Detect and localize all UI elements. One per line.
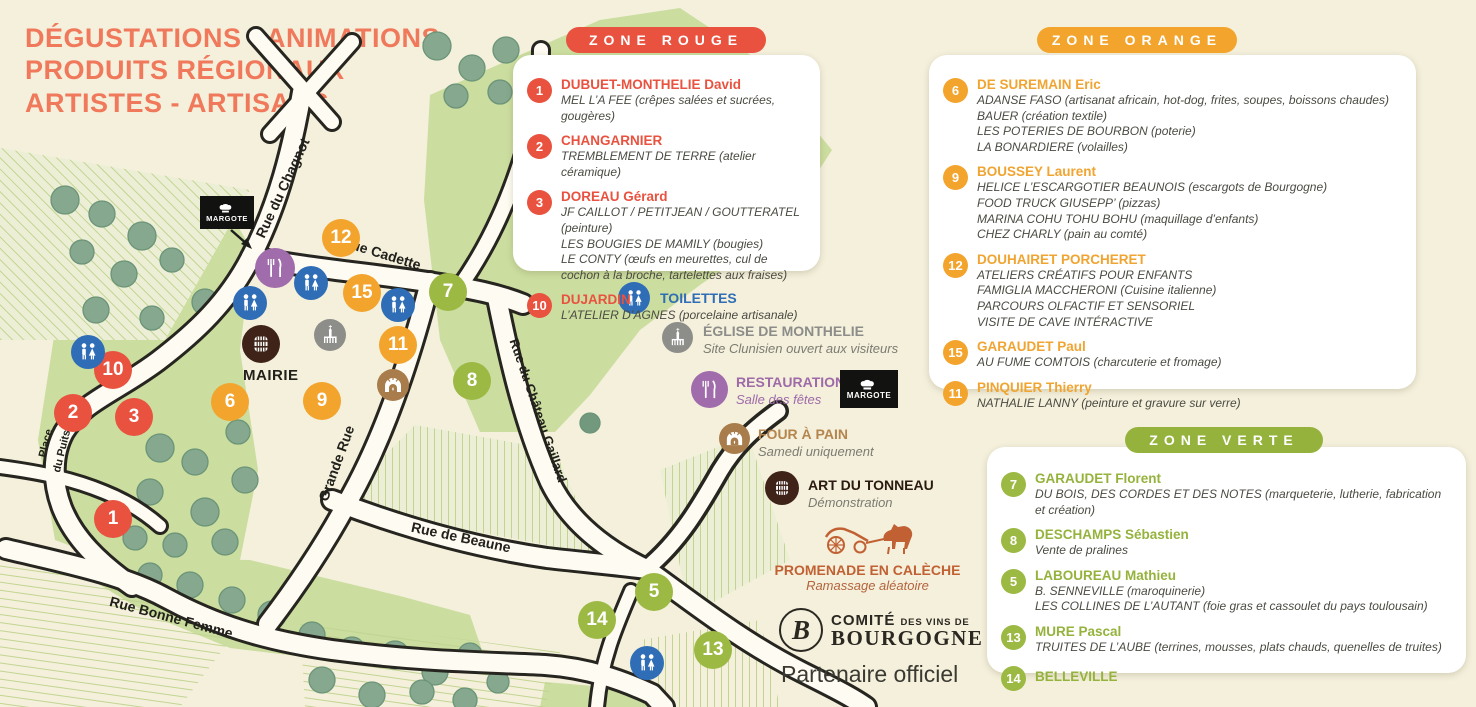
map-marker-8: 8 xyxy=(453,362,491,400)
map-marker-11: 11 xyxy=(379,326,417,364)
item-number-badge: 3 xyxy=(527,190,552,215)
zone-verte-header: ZONE VERTE xyxy=(1125,427,1323,453)
exhibitor-name: PINQUIER Thierry xyxy=(977,380,1241,395)
art-du-tonneau-legend-sub: Démonstration xyxy=(808,495,893,510)
item-number-badge: 14 xyxy=(1001,666,1026,691)
margote-legend-label: MARGOTE xyxy=(847,391,891,400)
four-a-pain-legend-sub: Samedi uniquement xyxy=(758,444,874,459)
exhibitor-name: DOUHAIRET PORCHERET xyxy=(977,252,1216,267)
item-number-badge: 12 xyxy=(943,253,968,278)
exhibitor-details: TREMBLEMENT DE TERRE (atelier céramique) xyxy=(561,149,808,180)
partner-tagline: Partenaire officiel xyxy=(781,661,983,688)
zone-rouge-item-1: 1 DUBUET-MONTHELIE David MEL L’A FEE (cr… xyxy=(527,77,808,124)
zone-orange-item-9: 9 BOUSSEY Laurent HELICE L’ESCARGOTIER B… xyxy=(943,164,1404,242)
item-number-badge: 5 xyxy=(1001,569,1026,594)
four-a-pain-legend-label: FOUR À PAIN xyxy=(758,426,848,442)
caleche-legend: PROMENADE EN CALÈCHE Ramassage aléatoire xyxy=(770,515,965,593)
map-marker-1: 1 xyxy=(94,500,132,538)
zone-rouge-item-2: 2 CHANGARNIER TREMBLEMENT DE TERRE (atel… xyxy=(527,133,808,180)
zone-verte-item-8: 8 DESCHAMPS Sébastien Vente de pralines xyxy=(1001,527,1454,559)
exhibitor-details: JF CAILLOT / PETITJEAN / GOUTTERATEL (pe… xyxy=(561,205,808,283)
exhibitor-name: GARAUDET Florent xyxy=(1035,471,1454,486)
exhibitor-name: DESCHAMPS Sébastien xyxy=(1035,527,1189,542)
zone-rouge-panel: 1 DUBUET-MONTHELIE David MEL L’A FEE (cr… xyxy=(513,55,820,271)
restauration-legend-label: RESTAURATION xyxy=(736,374,845,390)
item-number-badge: 9 xyxy=(943,165,968,190)
zone-orange-panel: 6 DE SUREMAIN Eric ADANSE FASO (artisana… xyxy=(929,55,1416,389)
item-number-badge: 13 xyxy=(1001,625,1026,650)
exhibitor-details: ADANSE FASO (artisanat africain, hot-dog… xyxy=(977,93,1389,155)
map-marker-9: 9 xyxy=(303,382,341,420)
item-number-badge: 10 xyxy=(527,293,552,318)
toilets-map-icon xyxy=(233,286,267,320)
exhibitor-details: TRUITES DE L’AUBE (terrines, mousses, pl… xyxy=(1035,640,1442,656)
exhibitor-details: MEL L’A FEE (crêpes salées et sucrées, g… xyxy=(561,93,808,124)
map-marker-15: 15 xyxy=(343,274,381,312)
map-marker-6: 6 xyxy=(211,383,249,421)
item-number-badge: 2 xyxy=(527,134,552,159)
exhibitor-name: DUBUET-MONTHELIE David xyxy=(561,77,808,92)
mairie-label: MAIRIE xyxy=(243,367,299,384)
exhibitor-name: BOUSSEY Laurent xyxy=(977,164,1327,179)
event-map-flyer: Rue du Chagnot Rue Cadette Grande Rue Ru… xyxy=(0,0,1476,707)
map-marker-2: 2 xyxy=(54,394,92,432)
item-number-badge: 8 xyxy=(1001,528,1026,553)
zone-verte-panel: 7 GARAUDET Florent DU BOIS, DES CORDES E… xyxy=(987,447,1466,673)
partner-block: B COMITÉ DES VINS DE BOURGOGNE Partenair… xyxy=(779,608,983,688)
zone-orange-item-6: 6 DE SUREMAIN Eric ADANSE FASO (artisana… xyxy=(943,77,1404,155)
item-number-badge: 7 xyxy=(1001,472,1026,497)
map-marker-7: 7 xyxy=(429,273,467,311)
bread-oven-map-icon xyxy=(377,369,409,401)
item-number-badge: 15 xyxy=(943,340,968,365)
zone-orange-item-12: 12 DOUHAIRET PORCHERET ATELIERS CRÉATIFS… xyxy=(943,252,1404,330)
barrel-legend-icon xyxy=(765,471,799,505)
exhibitor-details: NATHALIE LANNY (peinture et gravure sur … xyxy=(977,396,1241,412)
zone-rouge-item-10: 10 DUJARDIN L’ATELIER D’AGNES (porcelain… xyxy=(527,292,808,324)
zone-verte-item-13: 13 MURE Pascal TRUITES DE L’AUBE (terrin… xyxy=(1001,624,1454,656)
zone-orange-header: ZONE ORANGE xyxy=(1037,27,1237,53)
exhibitor-details: Vente de pralines xyxy=(1035,543,1189,559)
exhibitor-details: AU FUME COMTOIS (charcuterie et fromage) xyxy=(977,355,1222,371)
zone-orange-item-11: 11 PINQUIER Thierry NATHALIE LANNY (pein… xyxy=(943,380,1404,412)
exhibitor-name: LABOUREAU Mathieu xyxy=(1035,568,1428,583)
item-number-badge: 6 xyxy=(943,78,968,103)
zone-rouge-item-3: 3 DOREAU Gérard JF CAILLOT / PETITJEAN /… xyxy=(527,189,808,283)
map-marker-5: 5 xyxy=(635,573,673,611)
map-marker-13: 13 xyxy=(694,631,732,669)
exhibitor-details: B. SENNEVILLE (maroquinerie) LES COLLINE… xyxy=(1035,584,1428,615)
exhibitor-details: DU BOIS, DES CORDES ET DES NOTES (marque… xyxy=(1035,487,1454,518)
map-marker-12: 12 xyxy=(322,219,360,257)
exhibitor-name: MURE Pascal xyxy=(1035,624,1442,639)
exhibitor-name: DOREAU Gérard xyxy=(561,189,808,204)
toilets-map-icon xyxy=(630,646,664,680)
zone-verte-item-14: 14 BELLEVILLE xyxy=(1001,665,1454,691)
item-number-badge: 11 xyxy=(943,381,968,406)
eglise-legend-sub: Site Clunisien ouvert aux visiteurs xyxy=(703,341,898,356)
exhibitor-details: HELICE L’ESCARGOTIER BEAUNOIS (escargots… xyxy=(977,180,1327,242)
map-marker-3: 3 xyxy=(115,398,153,436)
margote-map-label: MARGOTE xyxy=(206,214,248,223)
caleche-legend-sub: Ramassage aléatoire xyxy=(770,578,965,593)
bread-oven-legend-icon xyxy=(719,423,750,454)
zone-orange-item-15: 15 GARAUDET Paul AU FUME COMTOIS (charcu… xyxy=(943,339,1404,371)
restaurant-legend-icon xyxy=(691,371,728,408)
bourgogne-logo-icon: B xyxy=(779,608,823,652)
exhibitor-details: L’ATELIER D’AGNES (porcelaine artisanale… xyxy=(561,308,798,324)
zone-rouge-header: ZONE ROUGE xyxy=(566,27,766,53)
toilets-map-icon xyxy=(71,335,105,369)
toilets-map-icon xyxy=(294,266,328,300)
chef-hat-icon xyxy=(860,379,878,391)
exhibitor-name: CHANGARNIER xyxy=(561,133,808,148)
exhibitor-name: DE SUREMAIN Eric xyxy=(977,77,1389,92)
toilets-map-icon xyxy=(381,288,415,322)
restaurant-map-icon xyxy=(255,248,295,288)
margote-legend-badge: MARGOTE xyxy=(840,370,898,408)
exhibitor-name: DUJARDIN xyxy=(561,292,798,307)
caleche-legend-label: PROMENADE EN CALÈCHE xyxy=(770,562,965,578)
horse-carriage-icon xyxy=(808,515,928,555)
chef-hat-icon xyxy=(219,203,235,214)
logo-word-bourgogne: BOURGOGNE xyxy=(831,629,983,649)
zone-verte-item-7: 7 GARAUDET Florent DU BOIS, DES CORDES E… xyxy=(1001,471,1454,518)
church-map-icon xyxy=(314,319,346,351)
item-number-badge: 1 xyxy=(527,78,552,103)
map-marker-14: 14 xyxy=(578,601,616,639)
exhibitor-name: GARAUDET Paul xyxy=(977,339,1222,354)
exhibitor-name: BELLEVILLE xyxy=(1035,669,1118,684)
exhibitor-details: ATELIERS CRÉATIFS POUR ENFANTS FAMIGLIA … xyxy=(977,268,1216,330)
art-du-tonneau-legend-label: ART DU TONNEAU xyxy=(808,477,934,493)
margote-map-badge: MARGOTE xyxy=(200,196,254,229)
restauration-legend-sub: Salle des fêtes xyxy=(736,392,821,407)
zone-verte-item-5: 5 LABOUREAU Mathieu B. SENNEVILLE (maroq… xyxy=(1001,568,1454,615)
barrel-map-icon xyxy=(242,325,280,363)
